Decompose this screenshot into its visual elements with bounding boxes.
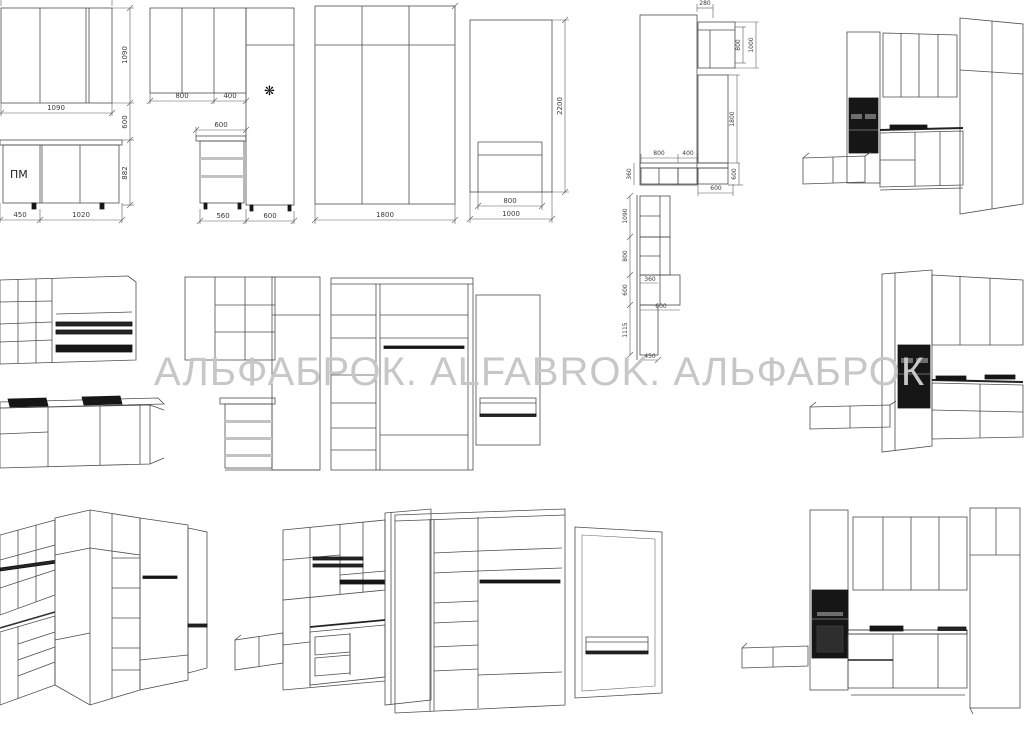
dim-600-v: 600 xyxy=(731,168,738,180)
dim-360-v: 360 xyxy=(626,168,633,180)
dim-1800: 1800 xyxy=(729,111,736,126)
dim-600-bottom: 600 xyxy=(263,212,276,220)
dim-400: 400 xyxy=(223,92,236,100)
dim-1000: 1000 xyxy=(502,210,520,218)
dim-600-gap: 600 xyxy=(121,115,129,128)
drawing-elevation-wall-base: 1090 1090 600 882 ПМ 450 xyxy=(0,0,152,235)
drawing-wardrobe-front: 1800 xyxy=(313,0,463,232)
dim-600-counter: 600 xyxy=(214,121,227,129)
dim-1115-plan: 1115 xyxy=(622,322,629,337)
render-kitchen-perspective-1 xyxy=(795,10,1024,222)
dim-560: 560 xyxy=(216,212,229,220)
dim-1090-width: 1090 xyxy=(47,104,65,112)
hanging-rod xyxy=(384,346,464,349)
dim-800-v: 800 xyxy=(735,39,742,51)
dim-450: 450 xyxy=(13,211,26,219)
dim-600-plan-h: 600 xyxy=(655,303,667,310)
drawing-elevation-tall-unit: ❋ 800 400 600 560 600 xyxy=(148,0,310,232)
dim-1090-height: 1090 xyxy=(121,46,129,64)
hanging-rod xyxy=(480,580,560,583)
dim-280: 280 xyxy=(699,0,711,7)
dim-800: 800 xyxy=(175,92,188,100)
dim-400-h: 400 xyxy=(682,150,694,157)
dim-800-plan: 800 xyxy=(622,250,629,262)
label-pm: ПМ xyxy=(10,168,28,181)
dim-1090-plan: 1090 xyxy=(622,208,629,223)
render-wardrobe-interior-iso xyxy=(390,505,690,745)
render-kitchen-elevation-3d xyxy=(733,500,1024,745)
dim-800-niche: 800 xyxy=(503,197,516,205)
dim-600-plan: 600 xyxy=(622,284,629,296)
drawing-corner-elevation-plan: 280 800 1000 1800 800 xyxy=(618,0,770,370)
watermark-text: АЛЬФАБРОК. ALFABROK. АЛЬФАБРОК xyxy=(154,350,874,395)
dim-882-base: 882 xyxy=(121,166,129,179)
dim-600-b: 600 xyxy=(710,185,722,192)
dim-2200: 2200 xyxy=(556,97,564,115)
hatched-wall xyxy=(640,15,697,185)
freezer-icon: ❋ xyxy=(264,84,275,99)
dim-1020: 1020 xyxy=(72,211,90,219)
hanging-rod xyxy=(143,576,177,579)
cad-furniture-sheet: 1090 1090 600 882 ПМ 450 xyxy=(0,0,1024,749)
drawing-side-panel: 2200 800 1000 xyxy=(455,0,585,232)
dim-360-plan: 360 xyxy=(644,276,656,283)
render-kitchen-open-iso xyxy=(0,262,180,480)
render-corner-iso xyxy=(0,500,230,749)
dim-1800: 1800 xyxy=(376,211,394,219)
dim-1000-v: 1000 xyxy=(748,37,755,52)
dim-800-h: 800 xyxy=(653,150,665,157)
